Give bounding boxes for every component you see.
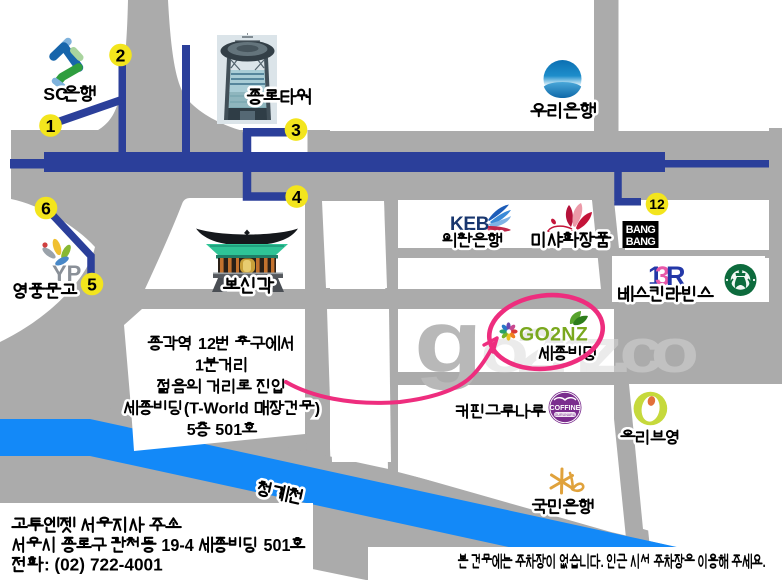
svg-text:.: . [763, 553, 766, 571]
svg-text:BANG: BANG [626, 236, 656, 248]
svg-text:12: 12 [649, 196, 665, 212]
svg-text:501: 501 [263, 536, 290, 556]
svg-text:(T-World: (T-World [184, 400, 249, 418]
svg-text:SC: SC [43, 84, 68, 104]
svg-text:12: 12 [198, 335, 216, 353]
svg-text:GO2NZ: GO2NZ [519, 324, 588, 346]
svg-text:COFFINE: COFFINE [550, 405, 581, 412]
svg-text:BANG: BANG [626, 224, 656, 236]
svg-text:(02): (02) [54, 555, 85, 575]
svg-text:5: 5 [87, 274, 97, 294]
svg-text:4: 4 [292, 187, 302, 207]
svg-text:2: 2 [116, 45, 126, 65]
svg-text:GURUNARU: GURUNARU [555, 413, 576, 417]
svg-text:501: 501 [215, 421, 242, 439]
svg-text:1: 1 [46, 116, 56, 136]
svg-text:.: . [601, 553, 604, 571]
svg-text:3: 3 [291, 120, 301, 140]
svg-text:): ) [315, 400, 320, 418]
svg-text:6: 6 [41, 198, 51, 218]
svg-text::: : [44, 555, 50, 575]
svg-text:722-4001: 722-4001 [90, 555, 163, 575]
svg-text:1: 1 [195, 357, 204, 375]
svg-text:19-4: 19-4 [161, 536, 194, 556]
svg-text:5: 5 [187, 421, 196, 439]
